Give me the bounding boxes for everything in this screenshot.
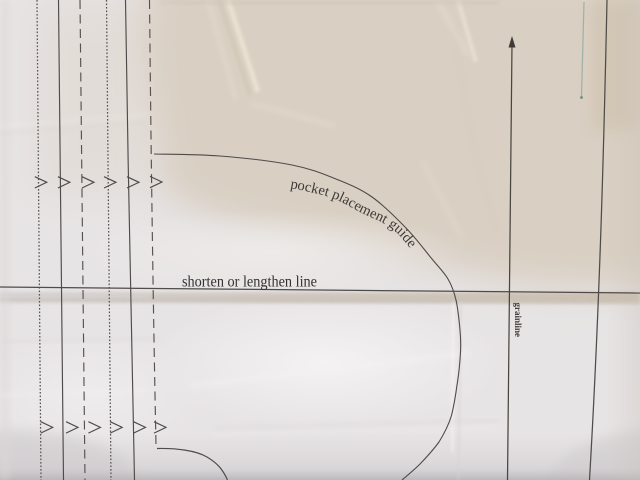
svg-text:shorten or lengthen line: shorten or lengthen line (182, 274, 317, 291)
svg-text:grainline: grainline (513, 303, 523, 338)
